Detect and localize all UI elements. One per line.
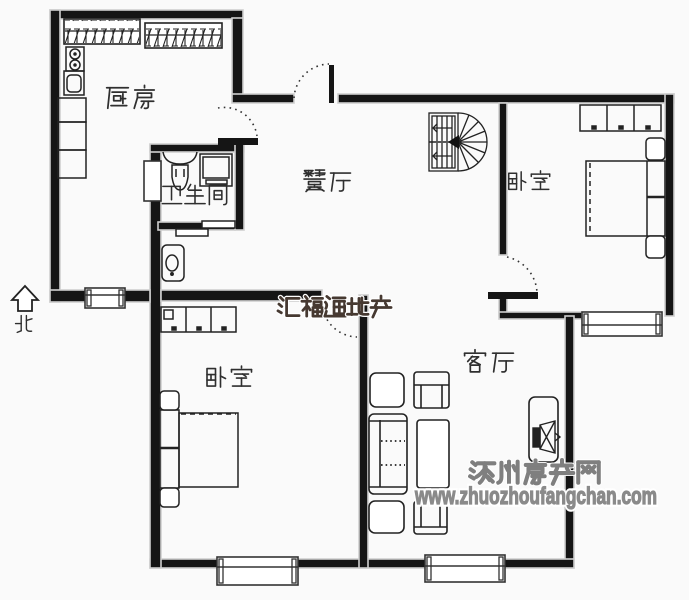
svg-text:www.zhuozhoufangchan.com: www.zhuozhoufangchan.com bbox=[414, 483, 657, 510]
